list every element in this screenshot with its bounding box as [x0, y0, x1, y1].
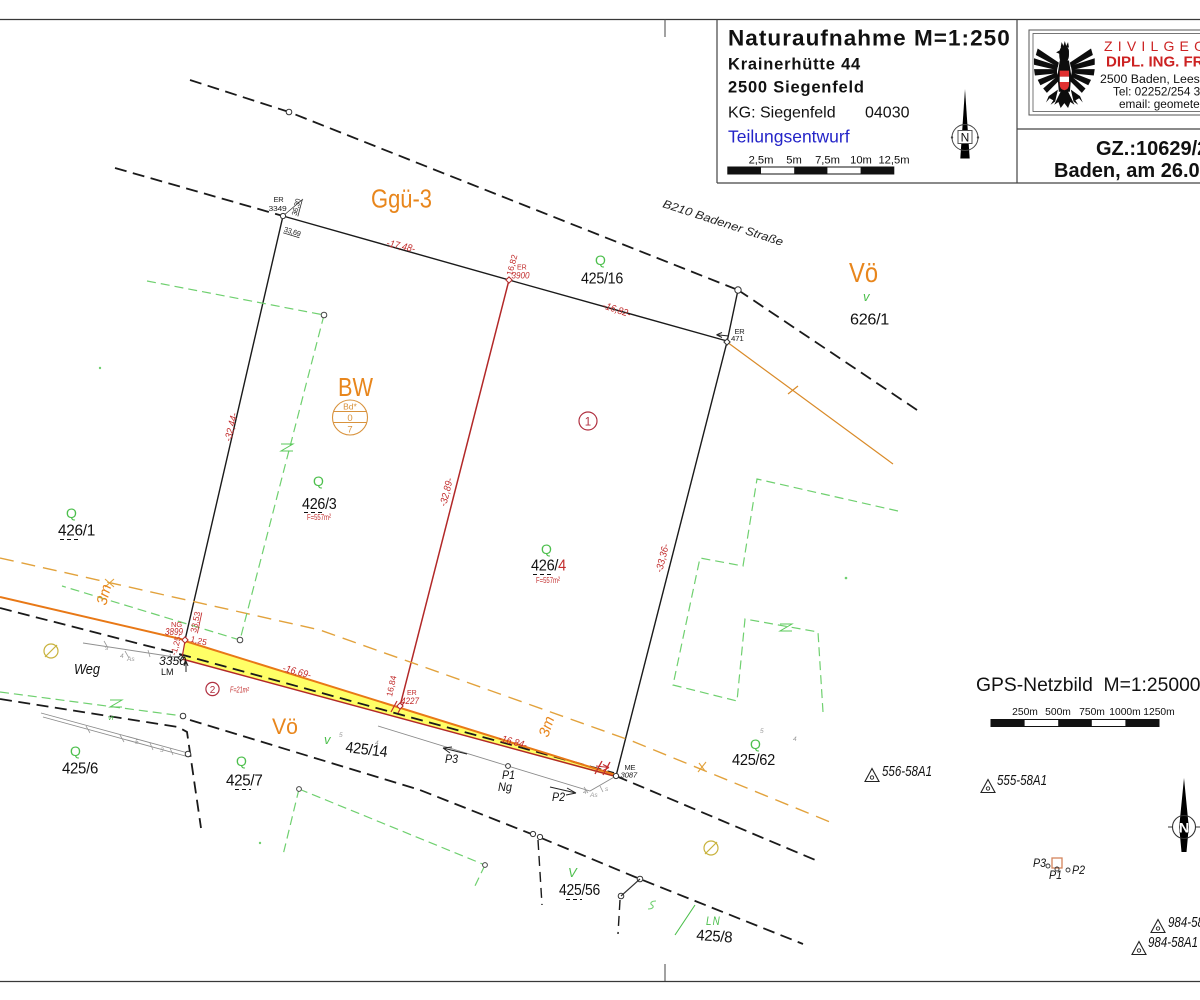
svg-text:555-58A1: 555-58A1: [997, 773, 1047, 789]
svg-text:KG: Siegenfeld04030: KG: Siegenfeld04030: [728, 105, 910, 122]
svg-text:N: N: [1179, 820, 1189, 836]
svg-text:Q: Q: [313, 473, 324, 489]
svg-text:ZIVILGEOMETER: ZIVILGEOMETER: [1104, 38, 1200, 54]
svg-text:4: 4: [793, 736, 797, 743]
svg-text:V: V: [568, 865, 578, 880]
svg-text:vr: vr: [108, 713, 115, 722]
svg-text:Bd*: Bd*: [343, 402, 357, 412]
svg-text:Weg: Weg: [74, 661, 101, 678]
svg-text:P3: P3: [1033, 858, 1047, 870]
svg-text:7: 7: [347, 425, 352, 436]
svg-text:Naturaufnahme M=1:250: Naturaufnahme M=1:250: [728, 26, 1011, 51]
svg-text:4227: 4227: [401, 696, 420, 707]
svg-text:626/1: 626/1: [850, 312, 889, 329]
svg-text:5: 5: [135, 739, 139, 746]
svg-text:471: 471: [731, 334, 744, 343]
svg-text:Vö: Vö: [272, 714, 298, 739]
svg-text:Vö: Vö: [849, 257, 878, 288]
svg-text:556-58A1: 556-58A1: [882, 764, 932, 780]
svg-text:1250m: 1250m: [1143, 707, 1174, 718]
svg-text:As: As: [126, 656, 135, 663]
svg-text:Q: Q: [236, 753, 247, 769]
svg-text:0: 0: [347, 413, 352, 424]
svg-text:Q: Q: [66, 505, 77, 521]
svg-text:F=557m²: F=557m²: [307, 512, 331, 522]
svg-text:984-58A1: 984-58A1: [1148, 935, 1198, 951]
svg-text:2: 2: [210, 685, 216, 696]
svg-text:LM: LM: [161, 667, 174, 677]
svg-text:4: 4: [375, 740, 379, 747]
svg-text:P3: P3: [445, 752, 458, 766]
svg-text:F=557m²: F=557m²: [536, 575, 560, 585]
svg-text:Q: Q: [541, 541, 552, 557]
svg-text:425/7: 425/7: [226, 773, 263, 790]
svg-text:1000m: 1000m: [1109, 707, 1140, 718]
svg-text:Q: Q: [750, 736, 761, 752]
svg-text:Krainerhütte 44: Krainerhütte 44: [728, 56, 861, 74]
svg-text:3900: 3900: [512, 271, 531, 282]
svg-text:Baden, am 26.09.2014: Baden, am 26.09.2014: [1054, 160, 1200, 182]
svg-text:4: 4: [583, 789, 587, 796]
svg-text:3349: 3349: [269, 204, 287, 213]
svg-text:As: As: [589, 792, 598, 799]
svg-text:5: 5: [760, 728, 764, 735]
svg-text:Ng: Ng: [498, 780, 512, 794]
svg-text:984-58A1: 984-58A1: [1168, 915, 1200, 931]
svg-text:ER: ER: [274, 195, 285, 204]
svg-text:5: 5: [339, 732, 343, 739]
svg-text:Q: Q: [70, 743, 81, 759]
svg-text:4: 4: [120, 653, 124, 660]
svg-text:P2: P2: [552, 790, 565, 804]
svg-text:425/56: 425/56: [559, 882, 600, 899]
svg-text:12,5m: 12,5m: [878, 155, 909, 167]
svg-text:5m: 5m: [786, 155, 802, 167]
svg-text:1: 1: [585, 417, 591, 429]
svg-text:250m: 250m: [1012, 707, 1038, 718]
svg-text:426/1: 426/1: [58, 523, 95, 540]
svg-text:Q: Q: [595, 252, 606, 268]
svg-text:email: geometer@aon.at: email: geometer@aon.at: [1119, 97, 1200, 111]
svg-text:7,5m: 7,5m: [815, 155, 840, 167]
svg-text:P1: P1: [1049, 870, 1062, 882]
svg-text:425/6: 425/6: [62, 761, 98, 778]
svg-text:BW: BW: [338, 372, 373, 402]
svg-text:425/62: 425/62: [732, 752, 775, 769]
svg-text:425/16: 425/16: [581, 271, 623, 288]
svg-text:500m: 500m: [1045, 707, 1071, 718]
svg-text:P2: P2: [1072, 865, 1086, 877]
svg-text:N: N: [961, 131, 970, 145]
svg-text:10m: 10m: [850, 155, 872, 167]
svg-text:DIPL. ING. FRANZ: DIPL. ING. FRANZ: [1106, 54, 1200, 71]
svg-text:750m: 750m: [1079, 707, 1105, 718]
svg-text:426/4: 426/4: [531, 558, 567, 575]
svg-text:425/8: 425/8: [696, 927, 733, 946]
svg-text:426/3: 426/3: [302, 496, 337, 513]
svg-text:GPS-Netzbild M=1:25000: GPS-Netzbild M=1:25000: [976, 675, 1200, 696]
svg-text:LN: LN: [706, 914, 721, 928]
svg-text:2500 Siegenfeld: 2500 Siegenfeld: [728, 79, 865, 97]
svg-text:3087: 3087: [621, 771, 639, 780]
svg-text:3: 3: [160, 747, 164, 754]
svg-text:Teilungsentwurf: Teilungsentwurf: [728, 127, 850, 147]
svg-text:F=21m²: F=21m²: [230, 686, 249, 695]
svg-text:GZ.:10629/2014: GZ.:10629/2014: [1096, 138, 1200, 160]
svg-text:Ggü-3: Ggü-3: [371, 184, 432, 214]
svg-text:2,5m: 2,5m: [749, 155, 774, 167]
